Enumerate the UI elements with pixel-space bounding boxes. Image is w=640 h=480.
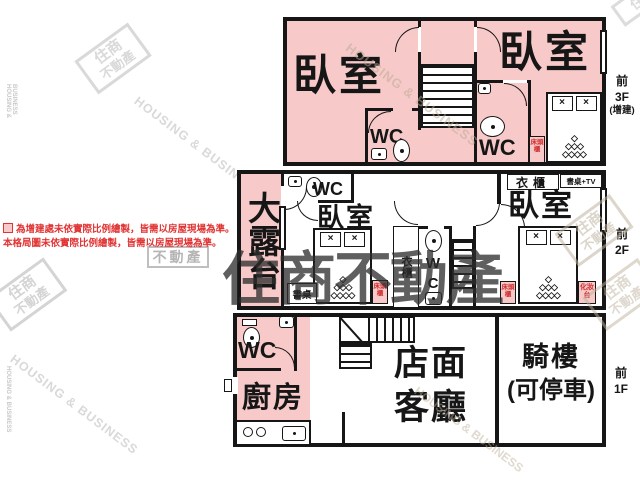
brand-logo-watermark-bottomleft: 住商 不動產 (0, 257, 67, 331)
floor3-window-right (600, 30, 607, 74)
bed-pattern: ◇ ◇◇◇ ◇◇◇◇ (562, 134, 586, 158)
floor1-arcade-label: 騎樓 (可停車) (499, 340, 603, 406)
floor2-stair-wall-right (473, 226, 476, 308)
floor1-shop-label: 店面 客廳 (375, 342, 487, 430)
floor3-bed: × × ◇ ◇◇◇ ◇◇◇◇ (546, 92, 602, 163)
floor1-wc-wall-bottom (237, 368, 281, 371)
floor2-bedside-right-label: 床頭櫃 (500, 281, 516, 304)
floor2-bedroom-right-label: 臥室 (508, 190, 574, 221)
floor2-wcleft-sink-icon (288, 176, 302, 187)
side-label-line: 2F (606, 243, 638, 259)
floor2-bed-right: × × ◇ ◇◇◇ ◇◇◇◇ (518, 226, 578, 304)
floor3-wcleft-wall-top-b (412, 108, 418, 111)
brand-en-watermark-bottomleft: HOUSING & BUSINESS (8, 352, 144, 459)
brand-logo-line2: 不動產 (5, 279, 59, 323)
side-label-line: (增建) (604, 105, 640, 117)
floor3-bedroom-right-label: 臥室 (499, 32, 591, 75)
floor2-window-right (600, 188, 607, 232)
floor2-bedroomright-wall (497, 174, 501, 204)
floorplan-canvas: 住商 不動產 HOUSING & BUSINESS 住商 不動產 HOUSING… (0, 0, 640, 480)
brand-boxed-watermark: 不動產 (147, 246, 209, 268)
floor3-wcleft-wall-left (365, 108, 368, 163)
bed-pillows: × × (526, 230, 571, 245)
arcade-label-line2: (可停車) (499, 375, 603, 406)
side-label-line: 3F (604, 90, 640, 106)
floor2-wardrobe-mid: 衣櫃 (393, 226, 419, 308)
brand-logo-line1: 住商 (0, 265, 50, 311)
floor2-desk-tv: 書桌+TV (560, 174, 602, 188)
floor2-bedside-left-label: 床頭櫃 (372, 280, 388, 304)
floor3-wcleft-toilet-icon (393, 139, 410, 162)
wardrobe-label: 衣櫃 (398, 256, 414, 278)
legend-note-text2: 本格局圖未依實際比例繪製，皆需以房屋現場為準。 (3, 235, 222, 249)
brand-logo-line2: 不動產 (93, 44, 143, 86)
floor2-vanity-label: 化妝台 (578, 281, 596, 304)
floor3-stairs (421, 64, 474, 128)
bed-pattern: ◇ ◇◇◇ ◇◇◇◇ (536, 275, 560, 299)
floor2-stairs (452, 239, 474, 289)
brand-en-watermark-left-vertical-2: HOUSING & BUSINESS (5, 366, 11, 438)
floor2-wcmid-sink-icon (425, 292, 442, 305)
pillow-icon: × (344, 232, 365, 247)
brand-logo-watermark-topright: 住商 (610, 0, 640, 27)
bed-pattern-row: ◇◇◇◇ (331, 291, 355, 299)
floor3-wcright-toilet-icon (480, 116, 505, 137)
shop-label-line2: 客廳 (375, 386, 487, 430)
floor2-wcmid-toilet-icon (425, 230, 442, 252)
shop-label-line1: 店面 (375, 342, 487, 386)
bed-pattern: ◇ ◇◇◇ ◇◇◇◇ (331, 275, 355, 299)
brand-logo-line1: 住商 (619, 0, 640, 19)
floor2-wcmid-door-gap (428, 226, 444, 229)
floor3-bedside-cabinet-label: 床頭櫃 (529, 136, 545, 163)
floor2-wcmid-label: WC (425, 254, 441, 293)
floor3-wcright-label: WC (479, 137, 516, 159)
legend-note-line2: 本格局圖未依實際比例繪製，皆需以房屋現場為準。 (3, 235, 222, 249)
side-label-line: 前 (606, 366, 636, 382)
side-label-line: 前 (604, 74, 640, 90)
floor1-wall-stub (342, 412, 345, 444)
legend-note-line1: 為增建處未依實際比例繪製，皆需以房屋現場為準。 (3, 221, 235, 235)
floor1-wc-label: WC (238, 339, 276, 362)
bed-pattern-row: ◇◇◇◇ (562, 150, 586, 158)
brand-logo-line2: 不動產 (601, 279, 640, 322)
pillow-icon: × (550, 230, 571, 245)
addition-legend-swatch (3, 223, 13, 233)
side-label-line: 1F (606, 382, 636, 398)
pillow-icon: × (576, 96, 597, 111)
floor2-side-label: 前 2F (606, 227, 638, 258)
floor2-desk-left: 書桌 (287, 283, 317, 304)
floor1-kitchen-sink-icon (282, 426, 306, 441)
floor1-kitchen-label: 廚房 (242, 384, 304, 413)
floor2-wcleft-wall-right (351, 174, 354, 203)
pillow-icon: × (526, 230, 547, 245)
legend-note-text1: 為增建處未依實際比例繪製，皆需以房屋現場為準。 (16, 221, 235, 235)
floor1-stairs-treads-vertical (368, 318, 413, 341)
floor2-terrace-window (279, 206, 286, 250)
pillow-icon: × (320, 232, 341, 247)
bed-pillows: × × (320, 232, 365, 247)
floor2-bed-left: × × ◇ ◇◇◇ ◇◇◇◇ (313, 228, 372, 304)
floor3-wcright-sink-icon (478, 83, 491, 94)
stove-burner-icon (243, 427, 253, 437)
stove-burner-icon (256, 427, 266, 437)
brand-en-watermark-left-vertical-1: HOUSING & BUSINESS (5, 84, 17, 146)
floor1-side-label: 前 1F (606, 366, 636, 397)
arcade-label-line1: 騎樓 (499, 340, 603, 375)
floor2-wcleft-label: WC (313, 180, 343, 198)
floor3-side-label: 前 3F (增建) (604, 74, 640, 118)
floor3-bedroom-left-label: 臥室 (293, 55, 385, 98)
floor2-terrace-label: 大露台 (244, 177, 280, 303)
side-label-line: 前 (606, 227, 638, 243)
floor1-stairs-lower (339, 343, 372, 369)
floor1-left-door-gap (231, 377, 238, 394)
pillow-icon: × (552, 96, 573, 111)
bed-pattern-row: ◇◇◇◇ (536, 291, 560, 299)
floor1-wc-toilet-tank (242, 319, 257, 326)
brand-logo-line1: 住商 (83, 31, 135, 75)
brand-logo-watermark-topleft: 住商 不動產 (74, 22, 151, 94)
floor1-left-door-leaf (224, 379, 232, 392)
bed-pillows: × × (552, 96, 597, 111)
floor3-wcleft-sink-icon (371, 148, 387, 160)
floor1-wc-sink-icon (279, 316, 294, 328)
